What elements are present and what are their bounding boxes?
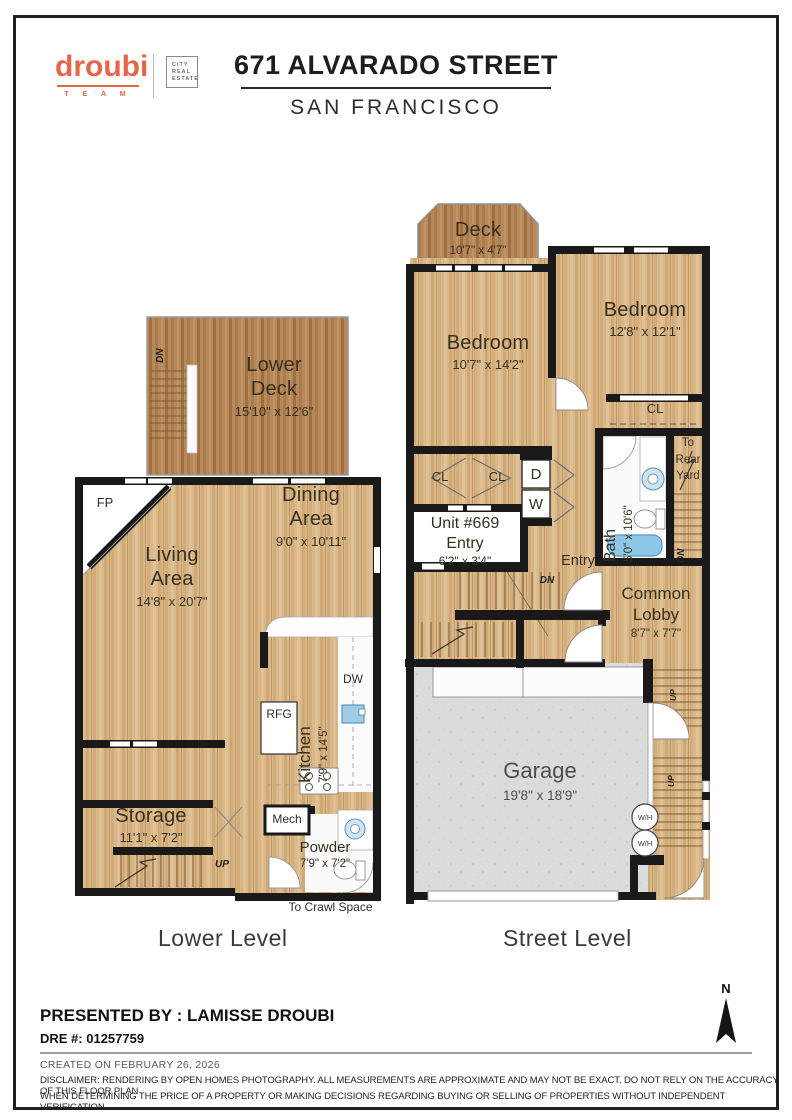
entry-label: Entry <box>552 553 604 571</box>
city-real-estate-logo: CITY REAL ESTATE <box>166 56 198 88</box>
up-label: UP <box>205 859 239 871</box>
page-title: 671 ALVARADO STREET <box>196 50 596 81</box>
garage-door <box>428 891 618 901</box>
storage-label: Storage 11'1" x 7'2" <box>85 804 217 846</box>
street-level-caption: Street Level <box>503 925 632 952</box>
garage-label: Garage 19'8" x 18'9" <box>460 758 620 804</box>
rfg-label: RFG <box>261 707 297 722</box>
kitchen-label: Kitchen 7'9" x 14'5" <box>295 633 330 783</box>
cl-top-label: CL <box>638 401 672 417</box>
logo-divider <box>153 54 154 98</box>
lower-level-plan: DN Lower Deck 15'10" x 12'6" FP Living A… <box>75 315 387 917</box>
dn-strip-label: DN <box>676 542 688 570</box>
bath-toilet <box>634 509 665 529</box>
header-title-block: 671 ALVARADO STREET SAN FRANCISCO <box>196 50 596 120</box>
powder-label: Powder 7'9" x 7'2" <box>279 839 371 871</box>
washer-label: W <box>522 496 550 514</box>
bedroom1-label: Bedroom 10'7" x 14'2" <box>426 331 550 373</box>
dre-number: DRE #: 01257759 <box>40 1031 144 1046</box>
dryer-label: D <box>522 466 550 484</box>
dw-label: DW <box>332 672 374 687</box>
footer-rule <box>40 1052 752 1054</box>
brand-team: T E A M <box>55 91 141 98</box>
bath-vanity <box>640 437 666 501</box>
mech-label: Mech <box>265 812 309 827</box>
right-thin-wall <box>702 781 710 859</box>
north-compass: N <box>712 981 740 1051</box>
north-arrow-icon <box>712 996 740 1046</box>
brand-name: droubi <box>55 52 141 82</box>
up1-label: UP <box>668 683 678 707</box>
title-rule <box>241 87 551 89</box>
disclaimer-line2: WHEN DETERMINING THE PRICE OF A PROPERTY… <box>40 1091 792 1113</box>
floor-plan-sheet: droubi T E A M CITY REAL ESTATE 671 ALVA… <box>0 0 792 1120</box>
living-area-label: Living Area 14'8" x 20'7" <box>103 543 241 610</box>
dn-mid-label: DN <box>534 575 560 587</box>
cl-a-label: CL <box>418 469 462 485</box>
presented-by: PRESENTED BY : LAMISSE DROUBI <box>40 1006 334 1026</box>
crawl-space-note: To Crawl Space <box>268 900 393 915</box>
bedroom2-label: Bedroom 12'8" x 12'1" <box>583 298 707 340</box>
bath-label: Bath 5'0" x 10'6" <box>602 460 635 562</box>
rear-yard-note: To Rear Yard <box>666 435 710 485</box>
street-level-plan: Deck 10'7" x 4'7" Bedroom 10'7" x 14'2" … <box>402 198 717 910</box>
deck-label: Deck 10'7" x 4'7" <box>418 218 538 258</box>
garage-storage-band <box>433 667 647 697</box>
page-subtitle: SAN FRANCISCO <box>196 96 596 120</box>
lower-deck-label: Lower Deck 15'10" x 12'6" <box>191 353 357 420</box>
common-lobby-label: Common Lobby 8'7" x 7'7" <box>604 584 708 641</box>
wh2-label: W/H <box>632 839 658 848</box>
unit-entry-label: Unit #669 Entry 6'2" x 3'4" <box>412 514 518 569</box>
dining-area-label: Dining Area 9'0" x 10'11" <box>247 483 375 550</box>
north-label: N <box>712 981 740 996</box>
droubi-team-logo: droubi T E A M CITY REAL ESTATE <box>55 52 198 98</box>
created-date: CREATED ON FEBRUARY 26, 2026 <box>40 1059 220 1071</box>
lower-level-caption: Lower Level <box>158 925 288 952</box>
cl-b-label: CL <box>475 469 519 485</box>
fireplace-label: FP <box>87 495 123 511</box>
brand-rule <box>57 85 139 87</box>
up2-label: UP <box>666 768 676 794</box>
wh1-label: W/H <box>632 813 658 822</box>
deck-dn-label: DN <box>155 341 167 371</box>
